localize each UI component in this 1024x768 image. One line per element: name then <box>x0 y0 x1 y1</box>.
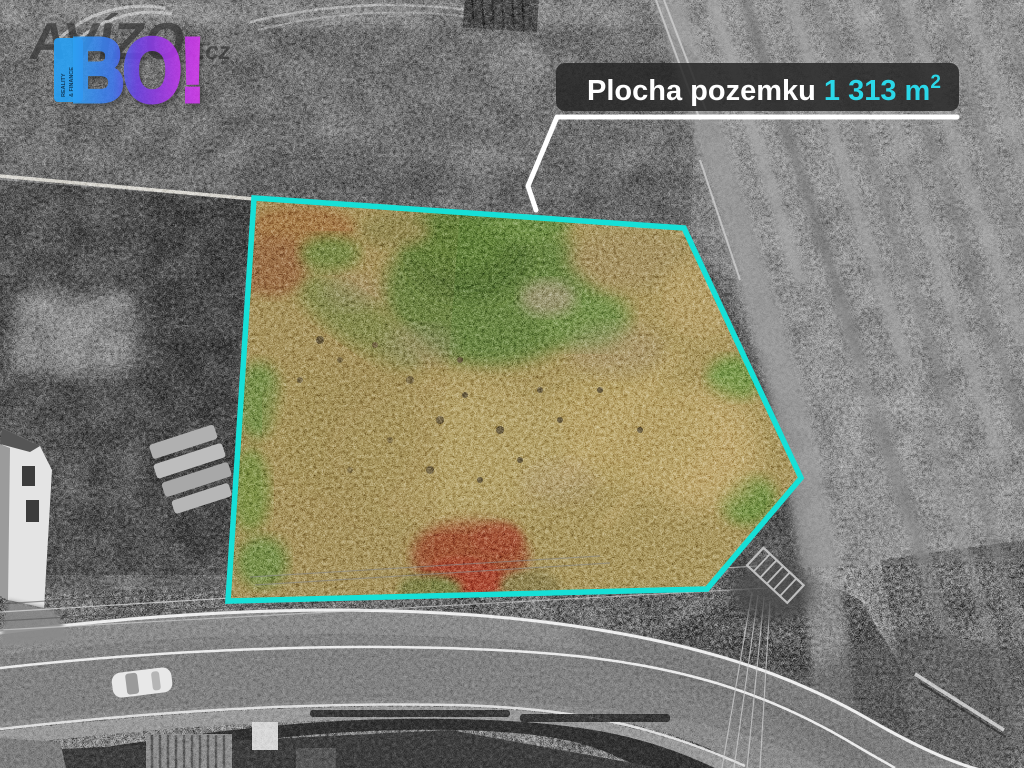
svg-text:BO!: BO! <box>70 20 204 121</box>
svg-text:Plocha pozemku 1 313 m2: Plocha pozemku 1 313 m2 <box>587 72 941 107</box>
svg-text:REALITY: REALITY <box>61 73 67 97</box>
